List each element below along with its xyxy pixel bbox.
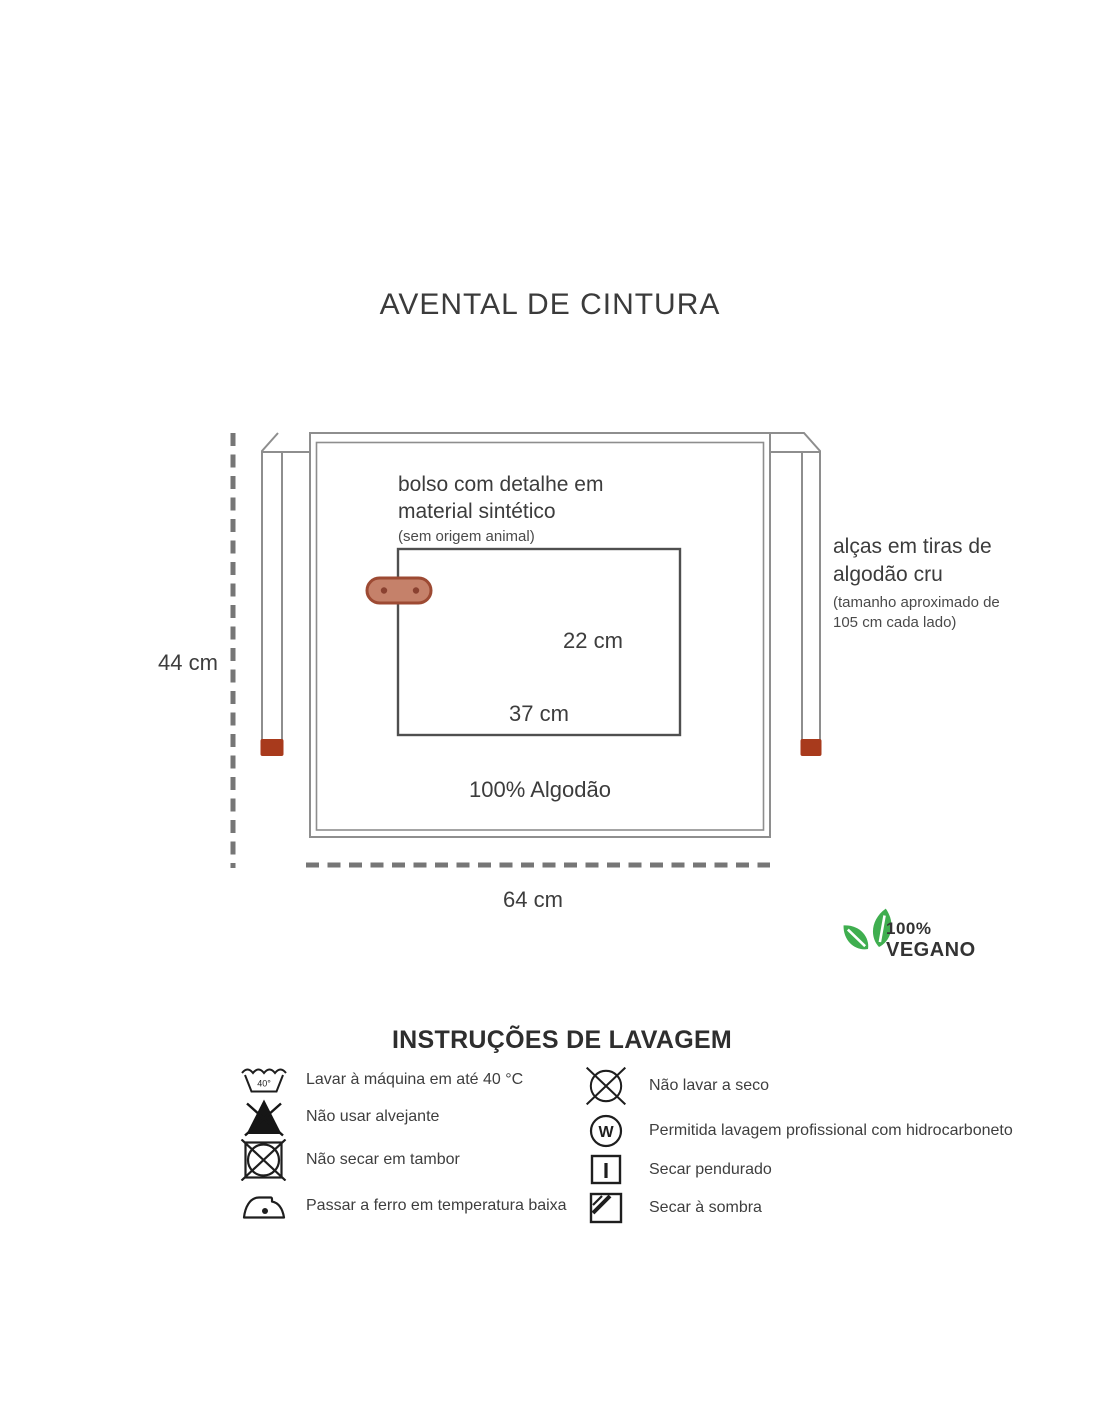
pocket-height-dimension-label: 22 cm (563, 628, 623, 654)
wash-row-dry-in-shade: Secar à sombra (583, 1192, 762, 1224)
apron-spec-sheet: AVENTAL DE CINTURA 44 cm 22 cm 37 cm 64 … (0, 0, 1100, 1422)
left-strap-red-tip (261, 739, 284, 756)
hang-dry-icon (583, 1154, 629, 1185)
wash-instruction-label: Secar à sombra (649, 1199, 762, 1217)
right-strap-outline (770, 433, 820, 740)
wash-row-hang-dry: Secar pendurado (583, 1154, 772, 1185)
pocket-tab (367, 578, 431, 603)
wash-instruction-label: Lavar à máquina em até 40 °C (306, 1071, 523, 1089)
svg-text:W: W (598, 1124, 614, 1141)
tab-rivet-right (413, 587, 419, 593)
wash-instruction-label: Passar a ferro em temperatura baixa (306, 1197, 567, 1215)
dry-in-shade-icon (583, 1192, 629, 1224)
pocket-annotation: bolso com detalhe em material sintético … (398, 471, 603, 546)
wash-row-machine-wash: 40° Lavar à máquina em até 40 °C (238, 1066, 523, 1093)
machine-wash-40-icon: 40° (238, 1066, 290, 1093)
iron-low-temperature-icon (238, 1193, 290, 1219)
tab-rivet-left (381, 587, 387, 593)
svg-text:40°: 40° (257, 1079, 271, 1089)
washing-instructions-title: INSTRUÇÕES DE LAVAGEM (24, 1026, 1100, 1055)
wash-instruction-label: Não lavar a seco (649, 1077, 769, 1095)
pocket-annotation-note: (sem origem animal) (398, 528, 603, 546)
professional-wet-clean-icon: W (583, 1114, 629, 1148)
do-not-dry-clean-icon (583, 1064, 629, 1108)
straps-annotation-note: (tamanho aproximado de 105 cm cada lado) (833, 593, 1000, 633)
pocket-width-dimension-label: 37 cm (459, 701, 619, 727)
wash-row-no-dry-clean: Não lavar a seco (583, 1064, 769, 1108)
wash-row-professional-clean: W Permitida lavagem profissional com hid… (583, 1114, 1013, 1148)
fabric-composition-label: 100% Algodão (390, 777, 690, 803)
page-title: AVENTAL DE CINTURA (0, 288, 1100, 322)
wash-instruction-label: Secar pendurado (649, 1161, 772, 1179)
vegan-badge-percent: 100% (886, 920, 976, 937)
vegan-badge-word: VEGANO (886, 940, 976, 960)
wash-instruction-label: Permitida lavagem profissional com hidro… (649, 1122, 1013, 1140)
straps-annotation: alças em tiras de algodão cru (tamanho a… (833, 533, 1000, 633)
wash-row-no-tumble-dry: Não secar em tambor (238, 1139, 460, 1181)
right-strap-red-tip (801, 739, 822, 756)
straps-annotation-line2: algodão cru (833, 561, 1000, 589)
do-not-bleach-icon (238, 1097, 290, 1137)
pocket-annotation-line1: bolso com detalhe em (398, 471, 603, 498)
wash-row-no-bleach: Não usar alvejante (238, 1097, 439, 1137)
pocket-annotation-line2: material sintético (398, 498, 603, 525)
wash-instruction-label: Não secar em tambor (306, 1151, 460, 1169)
wash-instruction-label: Não usar alvejante (306, 1108, 439, 1126)
straps-annotation-line1: alças em tiras de (833, 533, 1000, 561)
width-dimension-label: 64 cm (433, 887, 633, 913)
do-not-tumble-dry-icon (238, 1139, 290, 1181)
height-dimension-label: 44 cm (158, 650, 218, 676)
wash-row-iron-low: Passar a ferro em temperatura baixa (238, 1193, 567, 1219)
left-strap-outline (262, 433, 310, 740)
vegan-badge: 100% VEGANO (886, 920, 976, 960)
